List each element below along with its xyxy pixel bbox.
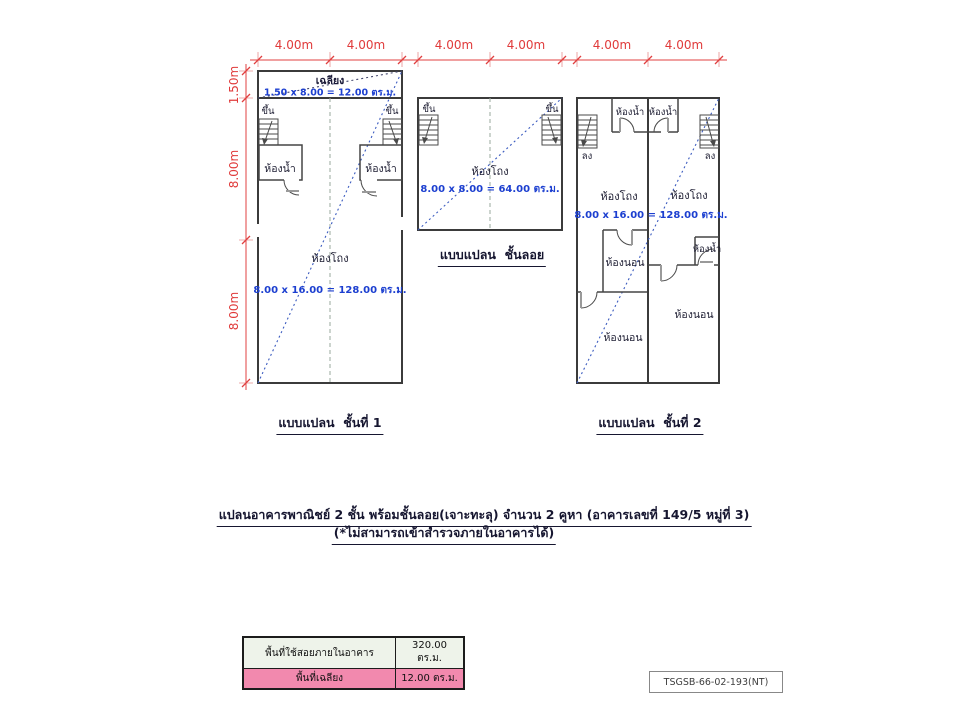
floor2-bathroom-small-label: ห้องน้ำ (693, 242, 721, 255)
floor1-bathroom-right-label: ห้องน้ำ (365, 161, 396, 175)
area-summary-table: พื้นที่ใช้สอยภายในอาคาร 320.00 ตร.ม. พื้… (242, 636, 465, 690)
porch-area-text: 1.50 x 8.00 = 12.00 ตร.ม. (264, 88, 396, 99)
floor2-area-text: 8.00 x 16.00 = 128.00 ตร.ม. (574, 210, 727, 221)
floor2-stairs-left (578, 115, 597, 148)
mezzanine-stairs-left (419, 115, 438, 145)
table-row-porch-area: พื้นที่เฉลียง 12.00 ตร.ม. (243, 669, 464, 690)
floor1-right-opening (400, 217, 403, 230)
floor1-stairs-left (259, 119, 278, 145)
floor1-stair-left-label: ขึ้น (262, 104, 275, 117)
floor2-plan: ลง ลง ห้องน้ำ ห้องน้ำ ห้องโถง ห้องโถง 8.… (574, 98, 727, 383)
floor2-stair-left-label: ลง (582, 151, 592, 162)
building-area-value: 320.00 ตร.ม. (396, 637, 465, 669)
mezzanine-stair-right-label: ขึ้น (546, 102, 559, 115)
mezzanine-caption: แบบแปลน ชั้นลอย (438, 245, 546, 267)
floorplan-drawing: เฉลียง 1.50 x 8.00 = 12.00 ตร.ม. ขึ้น ขึ… (0, 0, 960, 720)
floor2-dim-top-2: 4.00m (665, 38, 703, 52)
floor1-dim-left: 1.50m 8.00m 8.00m (227, 64, 253, 390)
porch-area-value: 12.00 ตร.ม. (396, 669, 465, 690)
floor1-caption: แบบแปลน ชั้นที่ 1 (276, 413, 383, 435)
porch-label: เฉลียง (316, 74, 344, 87)
mezzanine-stair-left-label: ขึ้น (423, 102, 436, 115)
sheet-subtitle: (*ไม่สามารถเข้าสำรวจภายในอาคารได้) (332, 523, 556, 545)
floor1-dim-left-3: 8.00m (227, 292, 241, 330)
floor2-dim-top: 4.00m 4.00m (569, 38, 727, 67)
floor2-dim-top-1: 4.00m (593, 38, 631, 52)
floor2-bathroom-top-left-label: ห้องน้ำ (616, 105, 644, 118)
floor2-bedroom-right-label: ห้องนอน (674, 309, 713, 321)
porch-area-label: พื้นที่เฉลียง (243, 669, 396, 690)
table-row-building-area: พื้นที่ใช้สอยภายในอาคาร 320.00 ตร.ม. (243, 637, 464, 669)
floorplan-sheet: เฉลียง 1.50 x 8.00 = 12.00 ตร.ม. ขึ้น ขึ… (0, 0, 960, 720)
floor1-dim-left-2: 8.00m (227, 150, 241, 188)
mezzanine-area-text: 8.00 x 8.00 = 64.00 ตร.ม. (420, 184, 559, 195)
floor1-plan: เฉลียง 1.50 x 8.00 = 12.00 ตร.ม. ขึ้น ขึ… (253, 71, 406, 383)
mezzanine-stairs-right (542, 115, 561, 145)
building-area-label: พื้นที่ใช้สอยภายในอาคาร (243, 637, 396, 669)
floor1-dim-top-2: 4.00m (347, 38, 385, 52)
floor2-hall-right-label: ห้องโถง (670, 188, 707, 202)
floor2-hall-left-label: ห้องโถง (600, 189, 637, 203)
mezzanine-dim-top: 4.00m 4.00m (410, 38, 570, 67)
floor2-bathroom-top-right-label: ห้องน้ำ (649, 105, 677, 118)
floor2-caption: แบบแปลน ชั้นที่ 2 (596, 413, 703, 435)
floor1-dim-left-1: 1.50m (227, 66, 241, 104)
floor1-stair-right-label: ขึ้น (386, 104, 399, 117)
floor2-stair-right-label: ลง (705, 151, 715, 162)
mezzanine-plan: ขึ้น ขึ้น ห้องโถง 8.00 x 8.00 = 64.00 ตร… (418, 98, 562, 230)
floor1-dim-top-1: 4.00m (275, 38, 313, 52)
floor2-bedroom-left-lower (577, 292, 647, 308)
floor1-left-opening (256, 224, 259, 237)
mezzanine-hall-label: ห้องโถง (471, 164, 508, 178)
floor1-area-text: 8.00 x 16.00 = 128.00 ตร.ม. (253, 285, 406, 296)
floor2-bedroom-left-upper-label: ห้องนอน (605, 257, 644, 269)
floor1-stairs-right (383, 119, 402, 145)
floor2-bedroom-left-lower-label: ห้องนอน (603, 332, 642, 344)
floor1-bathroom-left-label: ห้องน้ำ (264, 161, 295, 175)
mezzanine-dim-top-2: 4.00m (507, 38, 545, 52)
mezzanine-dim-top-1: 4.00m (435, 38, 473, 52)
floor1-hall-label: ห้องโถง (311, 251, 348, 265)
floor1-dim-top: 4.00m 4.00m (250, 38, 410, 67)
doc-ref-box: TSGSB-66-02-193(NT) (649, 671, 783, 693)
